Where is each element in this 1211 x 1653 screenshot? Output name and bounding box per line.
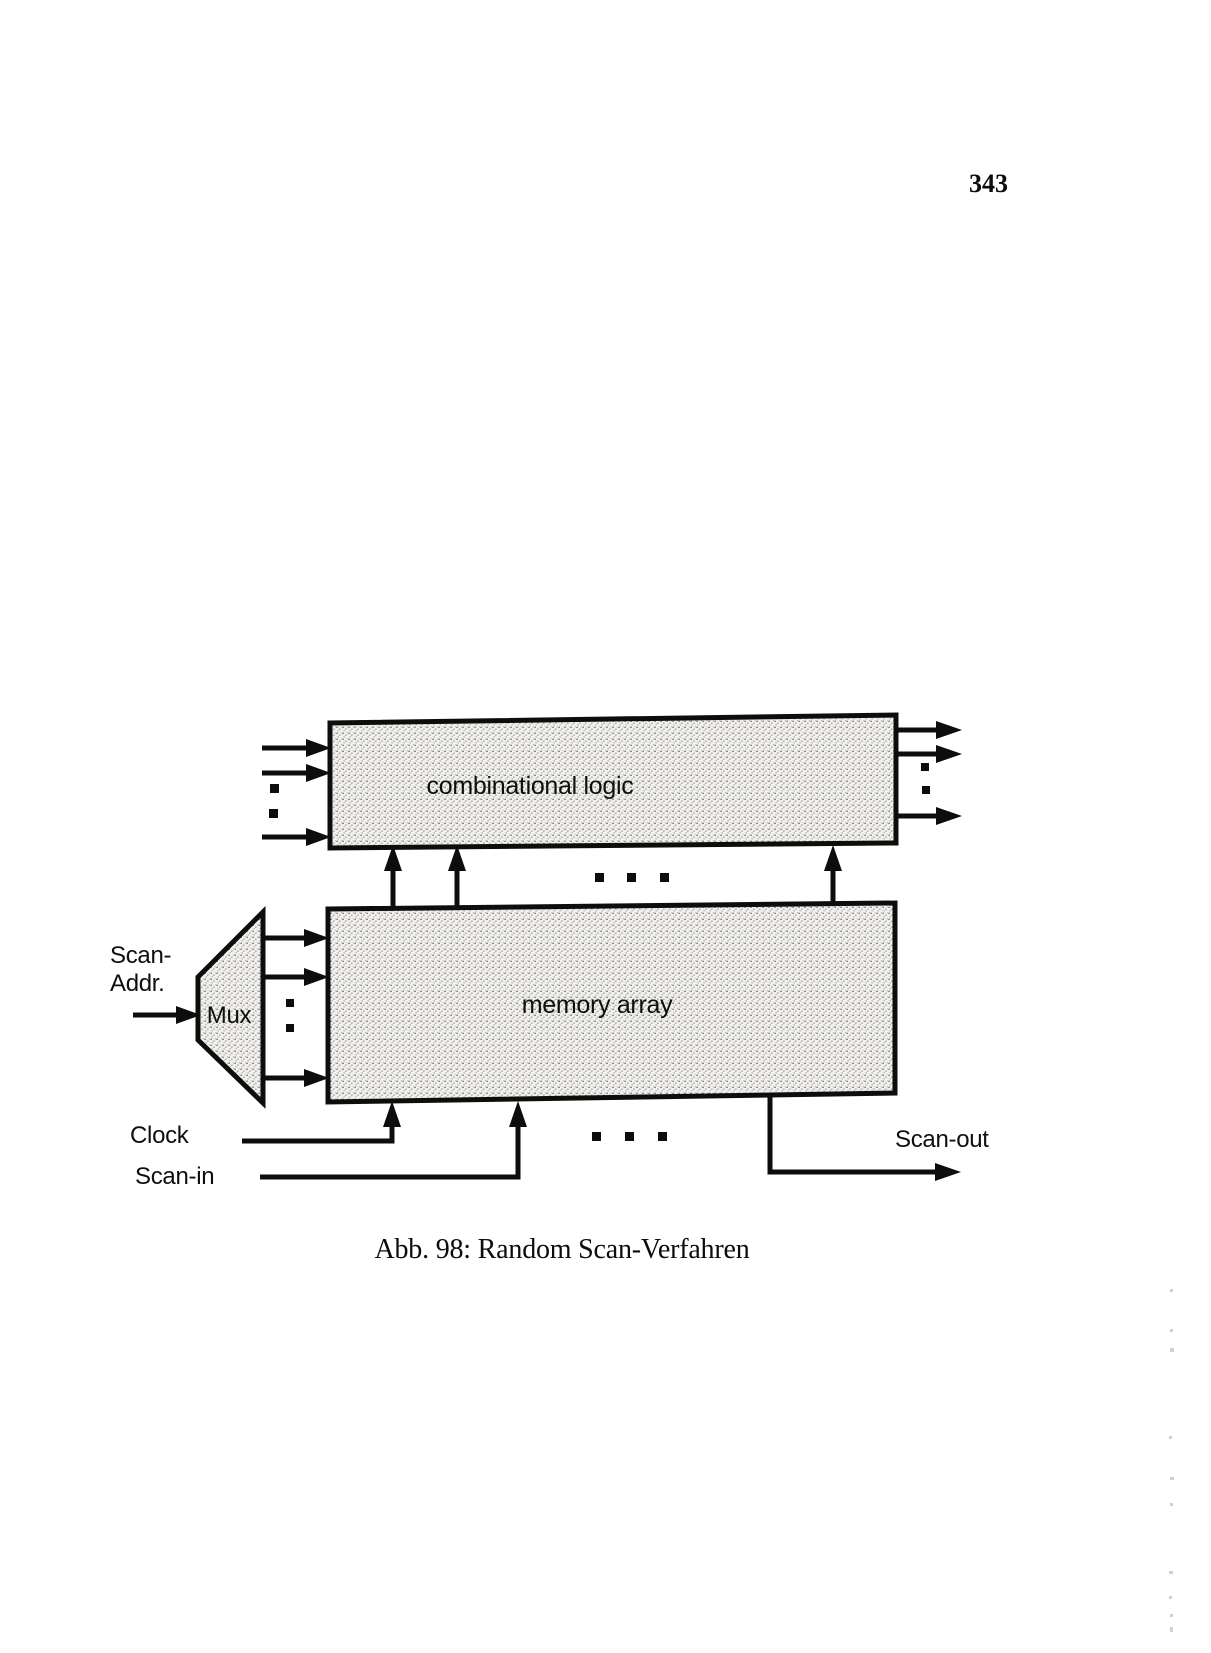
scan-in-label: Scan-in bbox=[135, 1163, 214, 1190]
ellipsis-dot bbox=[658, 1132, 667, 1141]
ellipsis-dot bbox=[270, 784, 279, 793]
mux-to-memory-arrows bbox=[263, 929, 329, 1087]
ellipsis-dot bbox=[269, 809, 278, 818]
primary-output-arrows bbox=[896, 721, 962, 825]
scan-addr-arrow bbox=[133, 1006, 201, 1024]
figure-caption: Abb. 98: Random Scan-Verfahren bbox=[374, 1234, 749, 1265]
page-number: 343 bbox=[969, 169, 1008, 198]
scan-out-label: Scan-out bbox=[895, 1126, 989, 1153]
memory-to-logic-arrows bbox=[384, 845, 842, 906]
ellipsis-dot bbox=[595, 873, 604, 882]
scanned-book-page: 343 combinational logic bbox=[0, 0, 1211, 1653]
ellipsis-dot bbox=[592, 1132, 601, 1141]
clock-label: Clock bbox=[130, 1122, 190, 1149]
ellipsis-dot bbox=[922, 786, 930, 794]
ellipsis-dot bbox=[627, 873, 636, 882]
ellipsis-dot bbox=[660, 873, 669, 882]
scan-addr-label-line2: Addr. bbox=[110, 970, 165, 997]
combinational-logic-label: combinational logic bbox=[427, 772, 634, 800]
ellipsis-dot bbox=[625, 1132, 634, 1141]
bottom-ellipsis bbox=[592, 1132, 667, 1141]
scan-artifact-dots bbox=[1169, 1289, 1174, 1632]
clock-arrow bbox=[242, 1101, 401, 1141]
mux-label: Mux bbox=[207, 1002, 252, 1029]
scan-addr-label-line1: Scan- bbox=[110, 942, 171, 969]
ellipsis-dot bbox=[286, 999, 294, 1007]
random-scan-diagram: 343 combinational logic bbox=[0, 0, 1211, 1653]
memory-array-label: memory array bbox=[522, 991, 673, 1019]
primary-input-arrows bbox=[262, 739, 331, 846]
ellipsis-dot bbox=[286, 1024, 294, 1032]
ellipsis-dot bbox=[921, 763, 929, 771]
